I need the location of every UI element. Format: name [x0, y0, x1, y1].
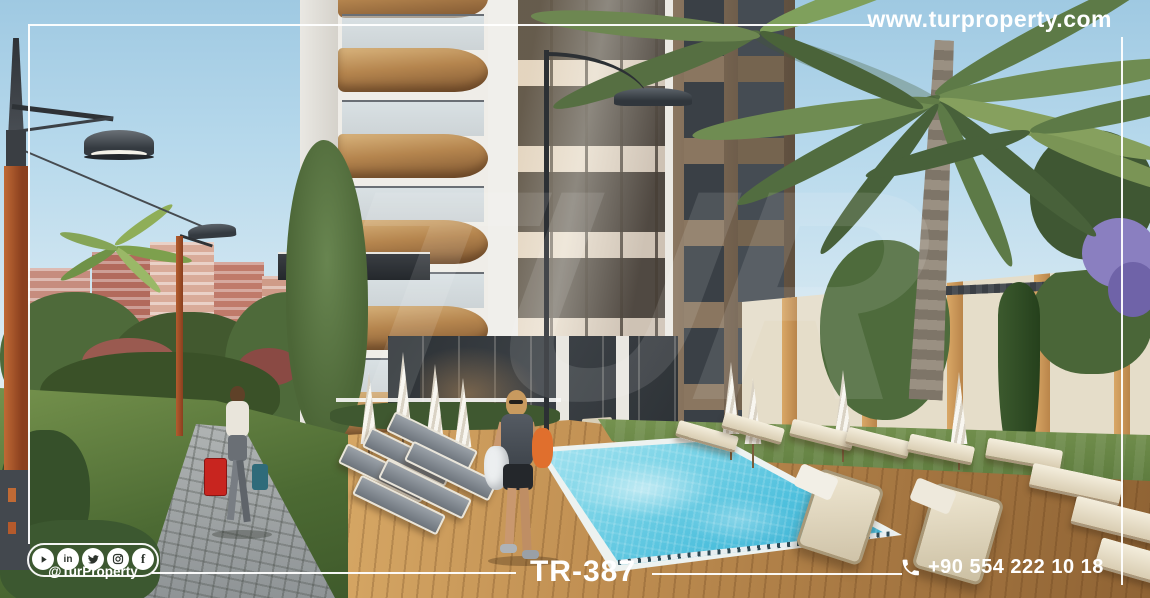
frame-bottom-line-left [152, 572, 516, 574]
frame-top-line [28, 24, 873, 26]
frame-right-line [1121, 37, 1123, 585]
social-handle: @TurProperty [27, 564, 159, 579]
phone-icon [900, 557, 921, 578]
website-url: www.turproperty.com [867, 6, 1112, 33]
overlay: www.turproperty.com in f @TurProperty TR… [0, 0, 1150, 598]
property-render-image: TUR www.turproperty.com in f @TurPropert… [0, 0, 1150, 598]
phone-block: +90 554 222 10 18 [900, 556, 1104, 579]
frame-left-line [28, 24, 30, 544]
frame-bottom-line-right [652, 573, 902, 575]
phone-number: +90 554 222 10 18 [928, 556, 1104, 579]
listing-code: TR-387 [516, 555, 650, 589]
